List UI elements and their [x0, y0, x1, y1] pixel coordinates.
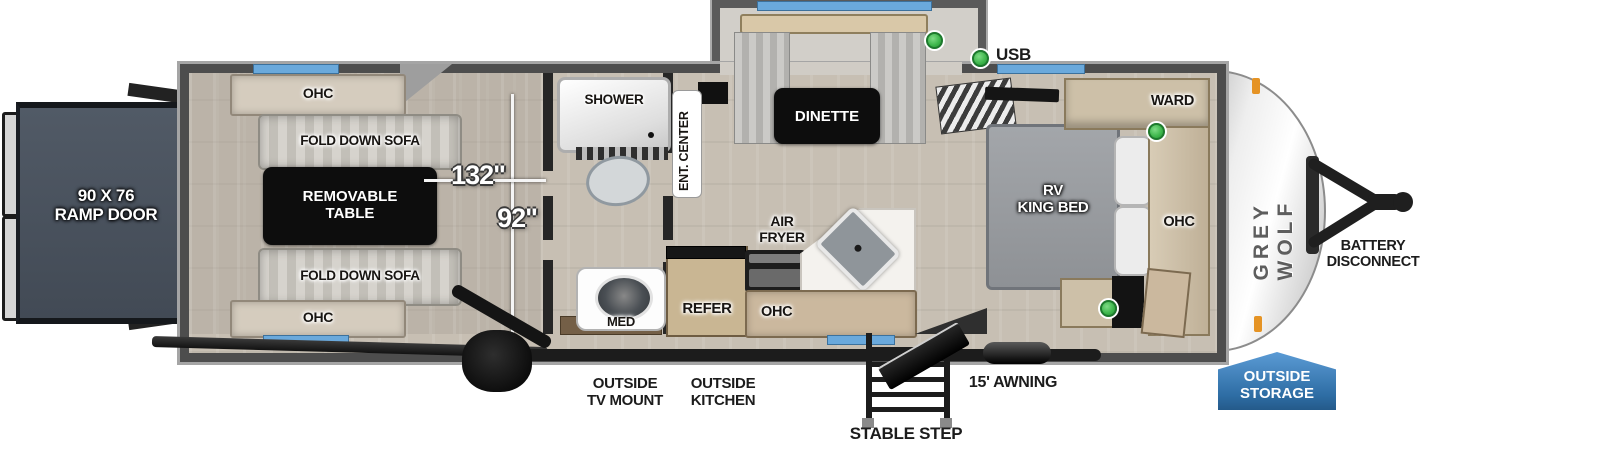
battery-disconnect-label: BATTERY DISCONNECT	[1308, 238, 1438, 270]
bedroom-ohc-label: OHC	[1150, 214, 1208, 230]
brand-logo: GREY WOLF	[1250, 142, 1298, 281]
pillow-2	[1114, 206, 1152, 276]
ent-center-label: ENT. CENTER	[677, 97, 691, 191]
outside-tv-mount-label: OUTSIDE TV MOUNT	[575, 376, 675, 410]
stable-step-label: STABLE STEP	[848, 424, 964, 444]
ward-label: WARD	[1151, 93, 1194, 109]
window-slide-top	[757, 1, 932, 11]
fold-down-sofa-bottom: FOLD DOWN SOFA	[258, 248, 462, 306]
wardrobe: WARD	[1064, 78, 1210, 130]
clearance-light-bottom	[1254, 316, 1262, 332]
usb-point-nightstand	[1100, 300, 1117, 317]
refer-label: REFER	[668, 300, 746, 317]
tv-box	[698, 82, 728, 104]
step-rung-4	[872, 392, 944, 397]
bed-label: RV KING BED	[989, 183, 1117, 217]
bath-wall-left-2	[543, 196, 553, 240]
usb-legend-label: USB	[996, 45, 1031, 65]
garage-ohc-bottom-label: OHC	[232, 309, 404, 325]
sofa-bottom-label: FOLD DOWN SOFA	[260, 268, 460, 283]
bed-tv-bar	[985, 87, 1059, 103]
window-top-right	[997, 64, 1085, 74]
shower-label: SHOWER	[560, 92, 668, 107]
usb-point-wardrobe	[1148, 123, 1165, 140]
ramp-door: 90 X 76 RAMP DOOR	[16, 102, 192, 324]
bedroom-black-cabinet	[1112, 276, 1144, 328]
removable-table: REMOVABLE TABLE	[263, 167, 437, 245]
ramp-door-label: 90 X 76 RAMP DOOR	[20, 186, 192, 224]
med-label: MED	[578, 314, 664, 329]
outside-kitchen-label: OUTSIDE KITCHEN	[677, 376, 769, 410]
stove-front	[749, 269, 801, 287]
bath-wall-left-3	[543, 260, 553, 334]
dinette-table-top	[740, 14, 928, 34]
dinette-plate: DINETTE	[774, 88, 880, 144]
shower-pan: SHOWER	[557, 77, 671, 153]
garage-ohc-top-label: OHC	[232, 85, 404, 101]
garage-ohc-bottom: OHC	[230, 300, 406, 338]
sofa-top-label: FOLD DOWN SOFA	[260, 133, 460, 148]
garage-ohc-top: OHC	[230, 74, 406, 116]
dim-length-label: 132"	[426, 160, 530, 191]
ent-center-panel: ENT. CENTER	[672, 90, 702, 198]
dinette-label: DINETTE	[795, 108, 859, 125]
floorplan-canvas: 90 X 76 RAMP DOOR GREY WOLF BATTERY DISC…	[0, 0, 1600, 462]
bath-wall-right-2	[663, 196, 673, 240]
outside-storage-label: OUTSIDE STORAGE	[1240, 369, 1314, 403]
window-top-left	[253, 64, 339, 74]
window-entry-door	[827, 335, 895, 345]
usb-point-dinette	[926, 32, 943, 49]
refrigerator-top-trim	[666, 246, 746, 259]
kitchen-ohc-label: OHC	[761, 304, 792, 320]
king-bed: RV KING BED	[986, 124, 1120, 290]
awning-roll	[983, 342, 1051, 364]
usb-legend-icon	[972, 50, 989, 67]
med-cabinet: MED	[576, 267, 666, 331]
range-stove	[745, 250, 805, 292]
refrigerator: REFER	[666, 246, 748, 337]
pillow-1	[1114, 136, 1152, 206]
outside-tv-mount-base	[462, 330, 532, 392]
outside-storage-badge: OUTSIDE STORAGE	[1218, 352, 1336, 410]
kitchen-lower-cabinet: OHC	[745, 290, 917, 338]
sink-drain	[853, 243, 863, 253]
shower-drain	[648, 132, 654, 138]
step-rung-5	[872, 407, 944, 412]
bath-wall-left-1	[543, 73, 553, 171]
stove-burners	[749, 254, 801, 263]
awning-label: 15' AWNING	[963, 374, 1063, 392]
air-fryer-label: AIR FRYER	[740, 214, 824, 245]
bedroom-door-leaf	[1141, 268, 1192, 338]
clearance-light-top	[1252, 78, 1260, 94]
